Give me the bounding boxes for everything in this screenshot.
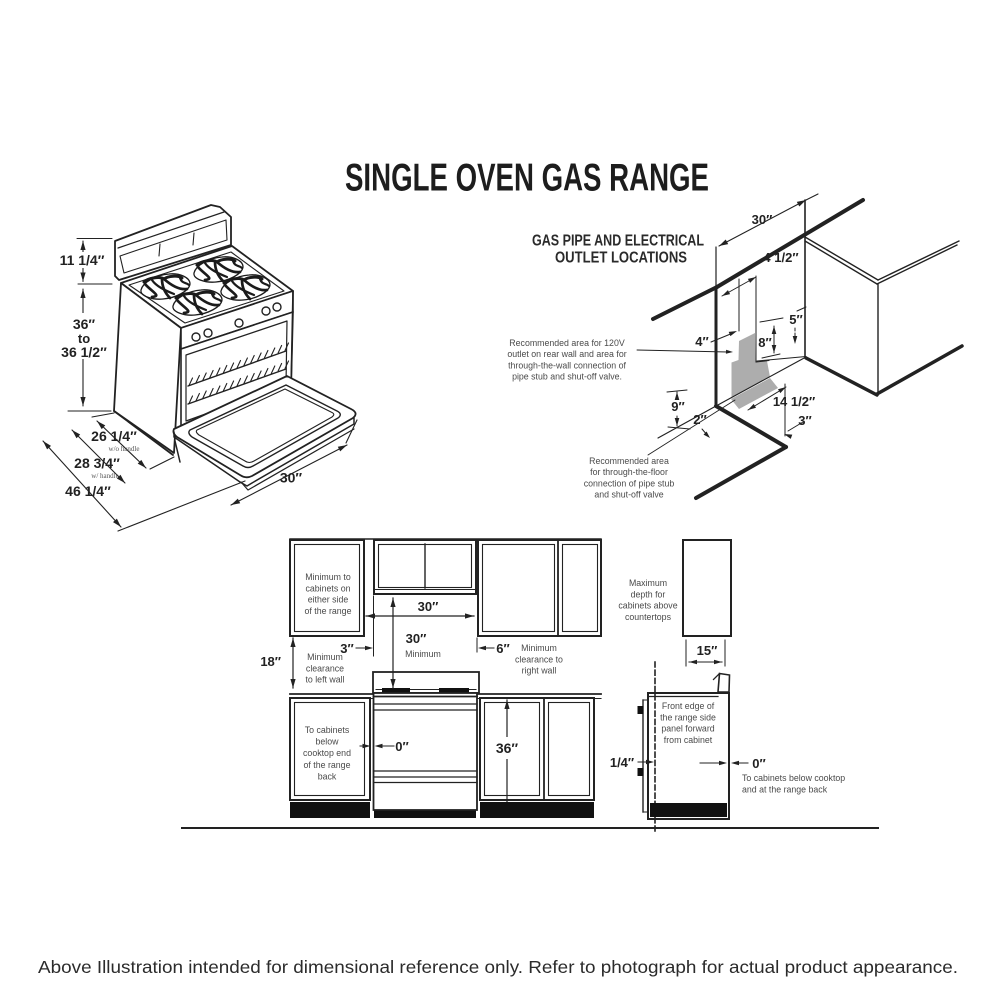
svg-text:below: below [316, 737, 340, 747]
svg-text:OUTLET LOCATIONS: OUTLET LOCATIONS [555, 250, 687, 267]
svg-text:w/o handle: w/o handle [109, 445, 140, 453]
svg-text:either side: either side [308, 595, 349, 605]
svg-text:4 1/2″: 4 1/2″ [763, 250, 798, 265]
svg-text:11 1/4″: 11 1/4″ [60, 252, 105, 268]
svg-text:and shut-off valve: and shut-off valve [594, 490, 663, 500]
svg-text:clearance: clearance [306, 663, 344, 673]
svg-text:Above Illustration intended fo: Above Illustration intended for dimensio… [38, 957, 958, 977]
svg-text:30″: 30″ [280, 470, 303, 486]
svg-text:cooktop end: cooktop end [303, 748, 351, 758]
svg-text:clearance to: clearance to [515, 654, 563, 664]
svg-text:0″: 0″ [395, 739, 408, 754]
svg-text:back: back [318, 771, 337, 781]
svg-text:5″: 5″ [789, 312, 802, 327]
svg-text:14 1/2″: 14 1/2″ [773, 394, 815, 409]
svg-text:right wall: right wall [522, 666, 557, 676]
svg-text:3″: 3″ [798, 413, 811, 428]
svg-text:the range side: the range side [660, 712, 716, 722]
svg-text:To cabinets: To cabinets [305, 725, 350, 735]
svg-text:Maximum: Maximum [629, 578, 667, 588]
svg-text:depth for: depth for [631, 589, 666, 599]
svg-text:Minimum to: Minimum to [305, 572, 351, 582]
svg-text:through-the-wall connection of: through-the-wall connection of [508, 360, 626, 370]
svg-text:of the range: of the range [305, 606, 352, 616]
svg-text:9″: 9″ [671, 399, 684, 414]
svg-text:and at the range back: and at the range back [742, 785, 828, 795]
svg-text:Minimum: Minimum [307, 652, 343, 662]
svg-text:To cabinets below cooktop: To cabinets below cooktop [742, 773, 845, 783]
svg-text:cabinets above: cabinets above [618, 601, 677, 611]
svg-text:w/ handle: w/ handle [91, 472, 118, 480]
svg-text:SINGLE OVEN GAS RANGE: SINGLE OVEN GAS RANGE [345, 157, 709, 200]
svg-text:30″: 30″ [418, 599, 439, 614]
svg-text:to left wall: to left wall [305, 675, 344, 685]
svg-text:countertops: countertops [625, 612, 672, 622]
svg-text:30″: 30″ [406, 631, 427, 646]
svg-text:Minimum: Minimum [405, 649, 441, 659]
svg-text:6″: 6″ [496, 641, 509, 656]
svg-text:0″: 0″ [752, 756, 765, 771]
svg-text:28 3/4″: 28 3/4″ [74, 455, 120, 471]
svg-text:Recommended area: Recommended area [589, 456, 669, 466]
svg-text:36″: 36″ [496, 740, 519, 756]
svg-text:46 1/4″: 46 1/4″ [65, 483, 111, 499]
svg-text:pipe stub and shut-off valve.: pipe stub and shut-off valve. [512, 372, 622, 382]
svg-text:outlet on rear wall and area f: outlet on rear wall and area for [507, 349, 626, 359]
svg-text:Front edge of: Front edge of [662, 701, 715, 711]
svg-text:1/4″: 1/4″ [610, 755, 634, 770]
svg-text:for through-the-floor: for through-the-floor [590, 467, 668, 477]
svg-text:connection of pipe stub: connection of pipe stub [584, 478, 675, 488]
svg-text:18″: 18″ [260, 654, 281, 669]
svg-text:panel forward: panel forward [661, 724, 714, 734]
svg-text:36 1/2″: 36 1/2″ [61, 344, 107, 360]
svg-text:Recommended area for 120V: Recommended area for 120V [509, 338, 625, 348]
svg-text:15″: 15″ [697, 643, 718, 658]
svg-text:8″: 8″ [758, 335, 771, 350]
svg-text:Minimum: Minimum [521, 643, 557, 653]
svg-text:from cabinet: from cabinet [664, 735, 713, 745]
svg-text:30″: 30″ [752, 212, 773, 227]
svg-text:26 1/4″: 26 1/4″ [91, 428, 137, 444]
svg-text:GAS PIPE AND ELECTRICAL: GAS PIPE AND ELECTRICAL [532, 233, 704, 250]
svg-text:cabinets on: cabinets on [306, 583, 351, 593]
svg-text:of the range: of the range [304, 760, 351, 770]
svg-text:4″: 4″ [695, 334, 708, 349]
svg-text:36″: 36″ [73, 316, 96, 332]
